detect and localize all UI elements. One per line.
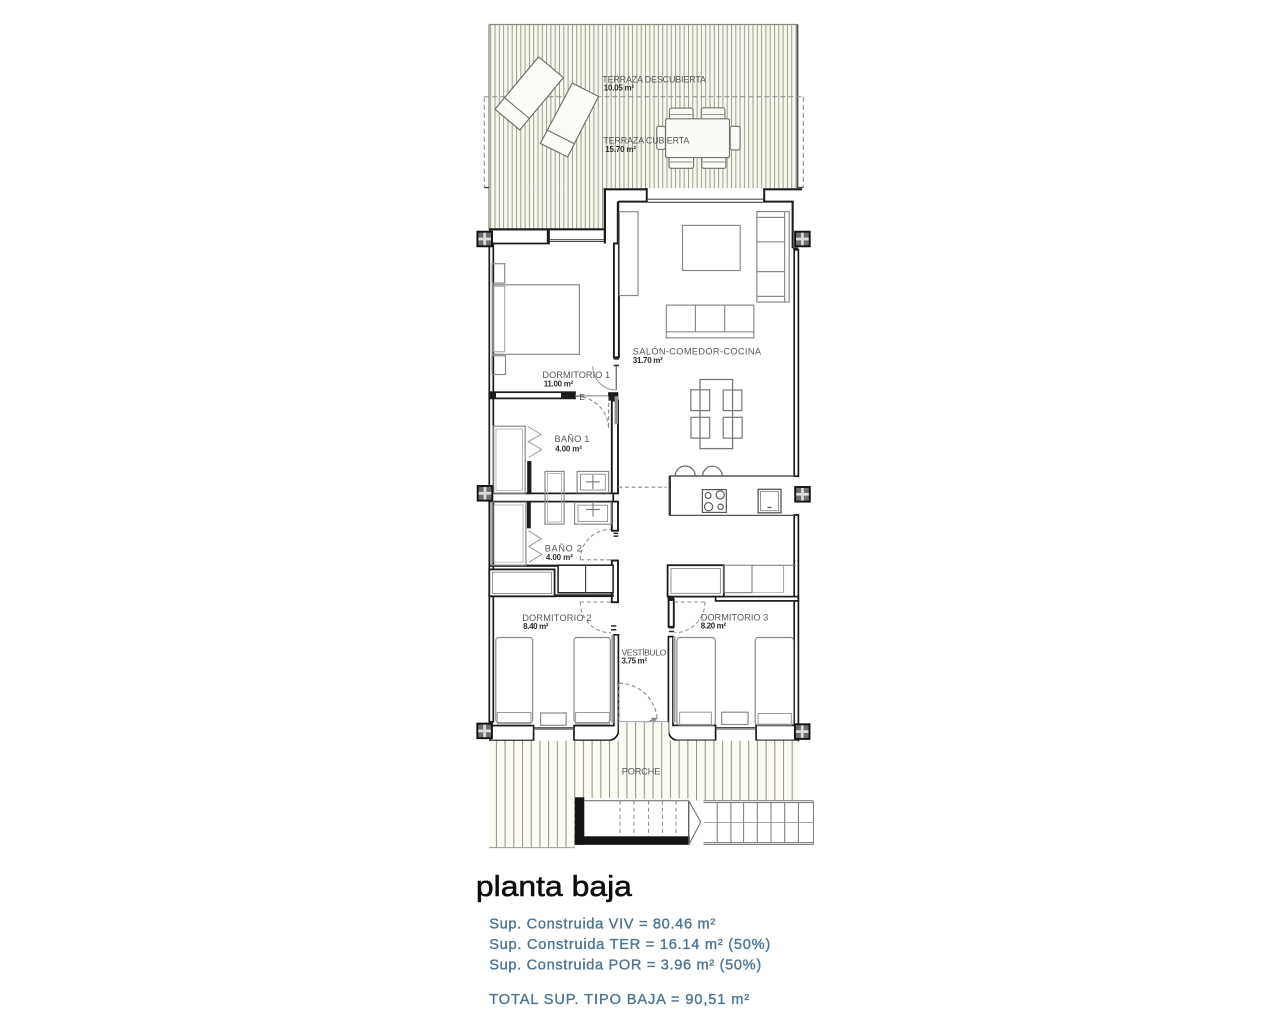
svg-text:Sup. Construida TER = 16.14 m²: Sup. Construida TER = 16.14 m² (50%) bbox=[489, 937, 770, 953]
svg-text:Sup. Construida POR = 3.96 m²: Sup. Construida POR = 3.96 m² (50%) bbox=[489, 957, 761, 973]
svg-text:11.00 m²: 11.00 m² bbox=[544, 379, 574, 388]
svg-text:Sup. Construida VIV = 80.46 m²: Sup. Construida VIV = 80.46 m² bbox=[489, 916, 715, 932]
svg-text:DORMITORIO 1: DORMITORIO 1 bbox=[542, 370, 610, 380]
svg-text:E: E bbox=[580, 393, 585, 402]
svg-text:PORCHE: PORCHE bbox=[622, 767, 661, 777]
svg-text:15.70 m²: 15.70 m² bbox=[605, 145, 636, 154]
svg-text:8.20 m²: 8.20 m² bbox=[701, 621, 727, 630]
svg-text:10.05 m²: 10.05 m² bbox=[604, 83, 635, 92]
svg-text:BAÑO 1: BAÑO 1 bbox=[555, 434, 590, 444]
svg-text:TOTAL SUP. TIPO BAJA = 90,51 m: TOTAL SUP. TIPO BAJA = 90,51 m² bbox=[489, 992, 749, 1008]
svg-text:4.00 m²: 4.00 m² bbox=[546, 553, 573, 562]
svg-text:planta baja: planta baja bbox=[476, 871, 633, 903]
svg-text:8.40 m²: 8.40 m² bbox=[523, 622, 549, 631]
svg-text:31.70 m²: 31.70 m² bbox=[633, 356, 663, 365]
svg-text:3.75 m²: 3.75 m² bbox=[622, 657, 648, 666]
svg-text:4.00 m²: 4.00 m² bbox=[555, 445, 582, 454]
